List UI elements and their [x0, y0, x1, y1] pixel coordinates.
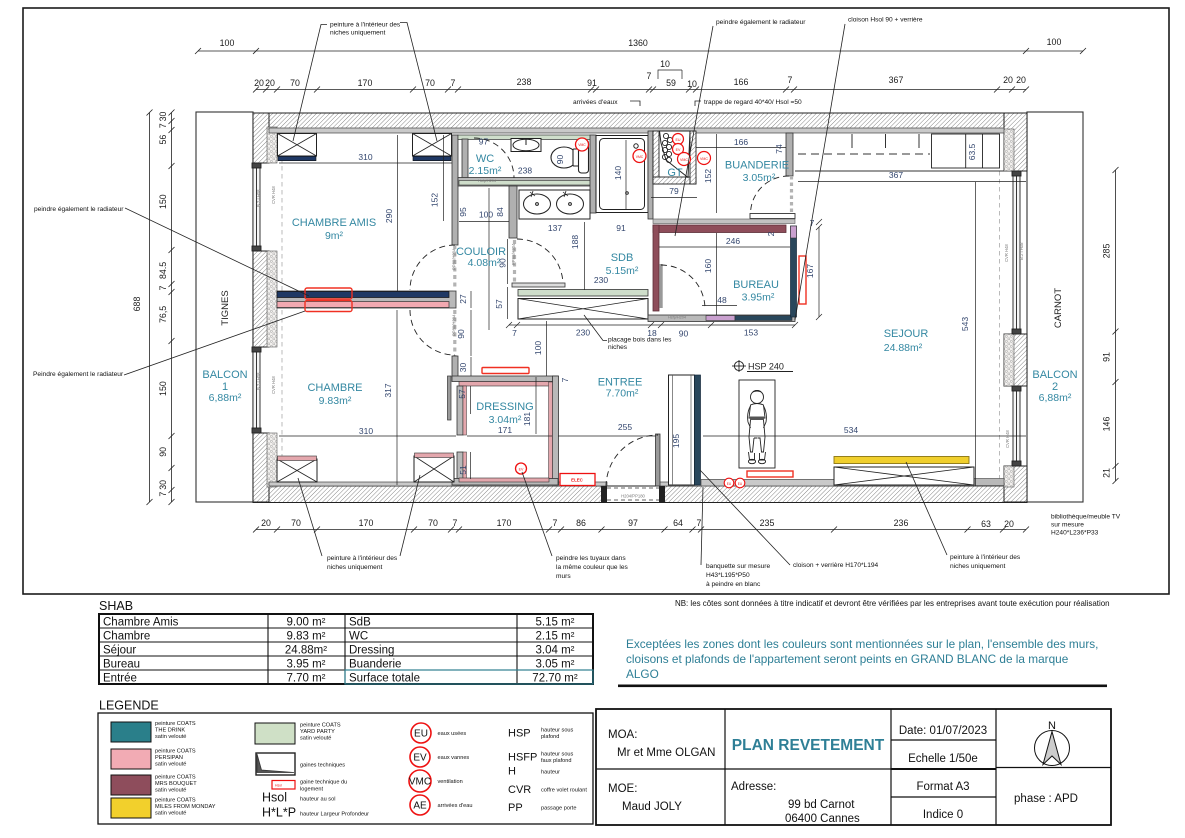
svg-text:3.95m²: 3.95m² — [742, 292, 775, 304]
svg-text:PERSIPAN: PERSIPAN — [155, 755, 183, 761]
svg-text:VMC: VMC — [578, 143, 586, 147]
svg-text:57: 57 — [457, 389, 467, 399]
svg-text:153: 153 — [744, 328, 758, 338]
svg-text:H: H — [508, 766, 516, 778]
svg-text:VMC: VMC — [409, 777, 431, 788]
svg-text:7: 7 — [453, 518, 458, 528]
svg-text:CARNOT: CARNOT — [1053, 288, 1064, 328]
svg-text:170: 170 — [497, 518, 512, 528]
svg-text:7: 7 — [158, 492, 168, 497]
svg-text:236: 236 — [894, 518, 909, 528]
svg-text:9.83m²: 9.83m² — [319, 395, 352, 407]
svg-text:2.15 m²: 2.15 m² — [536, 631, 575, 643]
svg-text:B.2 I H08: B.2 I H08 — [256, 372, 261, 390]
svg-text:Adresse:: Adresse: — [731, 781, 776, 793]
svg-text:EV: EV — [519, 467, 524, 471]
svg-text:satin velouté: satin velouté — [155, 762, 186, 768]
svg-text:76,5: 76,5 — [158, 306, 168, 323]
svg-text:9m²: 9m² — [325, 230, 344, 242]
svg-text:BALCON: BALCON — [1032, 369, 1077, 381]
svg-text:70: 70 — [290, 78, 300, 88]
svg-text:86: 86 — [576, 518, 586, 528]
svg-text:74: 74 — [774, 144, 784, 154]
svg-text:59: 59 — [666, 78, 676, 88]
svg-text:91: 91 — [616, 223, 626, 233]
svg-text:arrivées d'eaux: arrivées d'eaux — [573, 99, 618, 106]
svg-text:97: 97 — [628, 518, 638, 528]
svg-text:246: 246 — [726, 236, 740, 246]
svg-text:3.05 m²: 3.05 m² — [536, 659, 575, 671]
svg-text:B.2 I H08: B.2 I H08 — [1019, 242, 1024, 260]
svg-text:7: 7 — [512, 328, 517, 338]
svg-text:20: 20 — [254, 78, 264, 88]
svg-text:20: 20 — [1016, 75, 1026, 85]
svg-text:6,88m²: 6,88m² — [1039, 392, 1072, 404]
svg-text:EU: EU — [676, 138, 681, 142]
svg-text:20: 20 — [261, 518, 271, 528]
svg-text:hauteur sous: hauteur sous — [541, 728, 574, 734]
svg-text:10: 10 — [660, 59, 670, 69]
svg-text:310: 310 — [358, 152, 372, 162]
svg-text:Chambre: Chambre — [103, 631, 150, 643]
svg-text:20: 20 — [265, 78, 275, 88]
svg-text:30: 30 — [158, 112, 168, 122]
svg-text:171: 171 — [498, 425, 512, 435]
svg-text:146: 146 — [1102, 417, 1112, 432]
svg-text:195: 195 — [671, 434, 681, 448]
svg-text:99 bd Carnot: 99 bd Carnot — [788, 799, 855, 811]
svg-text:91: 91 — [587, 78, 597, 88]
svg-text:ALGO: ALGO — [626, 667, 659, 681]
svg-text:hauteur: hauteur — [541, 770, 560, 776]
svg-text:CHAMBRE AMIS: CHAMBRE AMIS — [292, 217, 376, 229]
svg-text:7: 7 — [451, 78, 456, 88]
svg-text:CHAMBRE: CHAMBRE — [307, 382, 362, 394]
svg-text:eaux usées: eaux usées — [438, 731, 467, 737]
svg-text:90: 90 — [555, 155, 565, 165]
svg-text:90: 90 — [679, 329, 689, 339]
svg-text:BALCON: BALCON — [202, 369, 247, 381]
svg-text:arrivées d'eau: arrivées d'eau — [438, 803, 473, 809]
svg-text:100: 100 — [220, 38, 235, 48]
svg-text:95: 95 — [458, 207, 468, 217]
svg-text:niches uniquement: niches uniquement — [950, 563, 1006, 570]
svg-text:100: 100 — [479, 210, 493, 220]
svg-text:367: 367 — [889, 170, 903, 180]
svg-text:543: 543 — [960, 317, 970, 331]
svg-text:placage bois dans les: placage bois dans les — [608, 337, 672, 344]
svg-text:Exceptées les zones dont les c: Exceptées les zones dont les couleurs so… — [626, 637, 1098, 651]
svg-text:SdB: SdB — [349, 617, 371, 629]
svg-text:gaines techniques: gaines techniques — [300, 763, 345, 769]
svg-text:170: 170 — [359, 518, 374, 528]
svg-text:la même couleur que les: la même couleur que les — [556, 564, 629, 571]
svg-text:satin velouté: satin velouté — [300, 736, 331, 742]
svg-text:peinture COATS: peinture COATS — [155, 749, 196, 755]
svg-text:TIGNES: TIGNES — [220, 290, 231, 325]
svg-text:10: 10 — [687, 79, 697, 89]
svg-text:CVR H48: CVR H48 — [271, 186, 276, 204]
svg-text:satin velouté: satin velouté — [155, 734, 186, 740]
svg-text:100: 100 — [533, 341, 543, 355]
svg-text:coffre volet roulant: coffre volet roulant — [541, 788, 587, 794]
svg-text:MRS BOUQUET: MRS BOUQUET — [155, 781, 197, 787]
svg-text:310: 310 — [359, 426, 373, 436]
svg-text:140: 140 — [613, 166, 623, 180]
svg-text:banquette sur mesure: banquette sur mesure — [706, 563, 770, 570]
svg-text:EU: EU — [738, 482, 743, 486]
svg-text:20: 20 — [1003, 75, 1013, 85]
svg-text:3.04m²: 3.04m² — [489, 414, 522, 426]
svg-text:eaux vannes: eaux vannes — [438, 755, 470, 761]
svg-text:90: 90 — [158, 447, 168, 457]
svg-text:Echelle 1/50e: Echelle 1/50e — [908, 753, 978, 765]
svg-text:GT: GT — [667, 167, 683, 179]
svg-text:167: 167 — [805, 264, 815, 278]
svg-text:cloisons et plafonds de l'appa: cloisons et plafonds de l'appartement se… — [626, 652, 1069, 666]
svg-text:logement: logement — [300, 787, 323, 793]
svg-text:Maud JOLY: Maud JOLY — [622, 801, 682, 813]
svg-text:24.88m²: 24.88m² — [884, 342, 923, 354]
svg-text:PLAN REVETEMENT: PLAN REVETEMENT — [732, 737, 885, 754]
svg-text:150: 150 — [158, 194, 168, 209]
svg-text:Buanderie: Buanderie — [349, 659, 401, 671]
svg-text:7.70 m²: 7.70 m² — [287, 673, 326, 685]
svg-text:Dressing: Dressing — [349, 645, 394, 657]
svg-text:Hsol: Hsol — [262, 791, 287, 805]
svg-text:PP80/H204: PP80/H204 — [511, 243, 516, 265]
svg-text:peinture à l'intérieur des: peinture à l'intérieur des — [327, 555, 398, 562]
svg-text:H43*L195*P50: H43*L195*P50 — [706, 572, 750, 579]
svg-text:290: 290 — [384, 209, 394, 223]
svg-text:3.04 m²: 3.04 m² — [536, 645, 575, 657]
svg-text:B.2 I H08: B.2 I H08 — [256, 189, 261, 207]
svg-text:70: 70 — [291, 518, 301, 528]
svg-text:7: 7 — [158, 285, 168, 290]
svg-text:SHAB: SHAB — [99, 599, 133, 613]
svg-text:niches: niches — [608, 344, 628, 351]
svg-text:Mr et Mme OLGAN: Mr et Mme OLGAN — [617, 747, 715, 759]
svg-text:peinture COATS: peinture COATS — [155, 798, 196, 804]
svg-text:166: 166 — [734, 137, 748, 147]
svg-text:niches uniquement: niches uniquement — [330, 30, 386, 37]
svg-text:100: 100 — [1047, 37, 1062, 47]
svg-text:30: 30 — [458, 363, 468, 373]
svg-text:hauteur au sol: hauteur au sol — [300, 797, 335, 803]
svg-text:Bureau: Bureau — [103, 659, 140, 671]
svg-text:HSP 240: HSP 240 — [748, 362, 784, 372]
svg-text:ventilation: ventilation — [438, 779, 463, 785]
svg-text:137: 137 — [548, 223, 562, 233]
svg-text:peinture à l'intérieur des: peinture à l'intérieur des — [950, 554, 1021, 561]
svg-text:84: 84 — [495, 207, 505, 217]
svg-text:20: 20 — [1004, 519, 1014, 529]
svg-text:152: 152 — [703, 169, 713, 183]
svg-text:235: 235 — [760, 518, 775, 528]
svg-text:CVR H48: CVR H48 — [1005, 430, 1010, 448]
svg-text:phase : APD: phase : APD — [1014, 793, 1078, 805]
svg-text:7: 7 — [158, 123, 168, 128]
svg-text:bibliothèque/meuble TV: bibliothèque/meuble TV — [1051, 514, 1121, 521]
svg-text:48: 48 — [717, 295, 727, 305]
svg-text:CVR H48: CVR H48 — [1004, 244, 1009, 262]
svg-text:2.15m²: 2.15m² — [469, 165, 502, 177]
svg-text:gaine technique du: gaine technique du — [300, 780, 347, 786]
svg-text:7: 7 — [560, 377, 570, 382]
svg-text:6,88m²: 6,88m² — [209, 392, 242, 404]
svg-text:255: 255 — [618, 422, 632, 432]
svg-text:84.5: 84.5 — [158, 262, 168, 279]
svg-text:3.95 m²: 3.95 m² — [287, 659, 326, 671]
svg-text:285: 285 — [1102, 244, 1112, 259]
svg-text:170: 170 — [358, 78, 373, 88]
svg-text:trappe de regard 40*40/ Hsol =: trappe de regard 40*40/ Hsol =50 — [704, 99, 802, 106]
svg-text:2: 2 — [766, 231, 776, 236]
svg-text:Date: 01/07/2023: Date: 01/07/2023 — [899, 725, 987, 737]
svg-text:PP80/H204: PP80/H204 — [452, 314, 457, 336]
svg-text:317: 317 — [383, 383, 393, 397]
svg-text:H204/PP180: H204/PP180 — [621, 494, 645, 499]
svg-text:150: 150 — [158, 381, 168, 396]
svg-text:688: 688 — [132, 297, 142, 312]
svg-text:WC: WC — [476, 153, 494, 165]
svg-text:plafond: plafond — [541, 734, 559, 740]
svg-text:SEJOUR: SEJOUR — [884, 328, 929, 340]
svg-text:79: 79 — [669, 186, 679, 196]
svg-text:peindre également le radiateur: peindre également le radiateur — [716, 19, 806, 26]
svg-text:9.83 m²: 9.83 m² — [287, 631, 326, 643]
svg-text:peinture COATS: peinture COATS — [155, 721, 196, 727]
svg-text:7: 7 — [553, 518, 558, 528]
svg-text:VMC: VMC — [700, 157, 708, 161]
svg-text:PP80/H204: PP80/H204 — [452, 248, 457, 270]
svg-text:EV: EV — [676, 148, 681, 152]
svg-text:MOA:: MOA: — [608, 729, 637, 741]
svg-text:H240*L236*P33: H240*L236*P33 — [1051, 530, 1099, 537]
svg-text:Hsol: Hsol — [275, 784, 282, 788]
svg-text:hauteur sous: hauteur sous — [541, 752, 574, 758]
svg-text:peinture COATS: peinture COATS — [155, 775, 196, 781]
svg-text:Entrée: Entrée — [103, 673, 137, 685]
svg-text:3.05m²: 3.05m² — [743, 172, 776, 184]
svg-text:EU: EU — [414, 729, 428, 740]
svg-text:WC: WC — [349, 631, 368, 643]
svg-text:91: 91 — [1102, 352, 1112, 362]
svg-text:hauteur Largeur Profondeur: hauteur Largeur Profondeur — [300, 812, 369, 818]
svg-text:367: 367 — [889, 75, 904, 85]
svg-text:H*L*P: H*L*P — [262, 806, 296, 820]
svg-text:LEGENDE: LEGENDE — [99, 699, 159, 713]
svg-text:97: 97 — [479, 137, 489, 147]
svg-text:Séjour: Séjour — [103, 645, 136, 657]
svg-text:faux plafond: faux plafond — [541, 758, 571, 764]
svg-text:EV: EV — [413, 753, 427, 764]
svg-text:06400 Cannes: 06400 Cannes — [785, 813, 860, 825]
svg-text:Hsfp/H204: Hsfp/H204 — [478, 179, 496, 183]
svg-text:70: 70 — [428, 518, 438, 528]
svg-text:70: 70 — [425, 78, 435, 88]
svg-text:peindre les tuyaux dans: peindre les tuyaux dans — [556, 555, 626, 562]
svg-text:YARD PARTY: YARD PARTY — [300, 729, 335, 735]
svg-text:63: 63 — [981, 519, 991, 529]
svg-text:Format A3: Format A3 — [916, 781, 969, 793]
svg-text:5.15m²: 5.15m² — [606, 265, 639, 277]
svg-text:56: 56 — [158, 135, 168, 145]
svg-text:72.70 m²: 72.70 m² — [532, 673, 578, 685]
svg-text:Surface totale: Surface totale — [349, 673, 420, 685]
svg-text:MILES FROM MONDAY: MILES FROM MONDAY — [155, 804, 216, 810]
svg-text:181: 181 — [522, 412, 532, 426]
svg-text:238: 238 — [517, 77, 532, 87]
svg-text:CVR: CVR — [508, 784, 531, 796]
svg-text:9.00 m²: 9.00 m² — [287, 617, 326, 629]
svg-text:4.08m²: 4.08m² — [468, 257, 501, 269]
svg-text:5.15 m²: 5.15 m² — [536, 617, 575, 629]
svg-text:63.5: 63.5 — [967, 143, 977, 160]
svg-text:57: 57 — [494, 299, 504, 309]
svg-text:cloison + verrière H170*L194: cloison + verrière H170*L194 — [793, 562, 879, 569]
svg-text:cloison Hsol 90 + verrière: cloison Hsol 90 + verrière — [848, 17, 923, 24]
svg-text:niches uniquement: niches uniquement — [327, 564, 383, 571]
svg-text:64: 64 — [673, 518, 683, 528]
svg-text:Indice 0: Indice 0 — [923, 809, 963, 821]
svg-text:BUANDERIE: BUANDERIE — [725, 160, 789, 172]
svg-text:Peindre également le radiateur: Peindre également le radiateur — [33, 371, 124, 378]
svg-text:188: 188 — [570, 235, 580, 249]
svg-text:166: 166 — [734, 77, 749, 87]
svg-text:24.88m²: 24.88m² — [285, 645, 327, 657]
svg-text:PP: PP — [508, 802, 523, 814]
svg-text:peinture à l'intérieur des: peinture à l'intérieur des — [330, 22, 401, 29]
svg-text:152: 152 — [430, 193, 440, 207]
svg-text:HSP: HSP — [508, 728, 531, 740]
svg-text:51: 51 — [458, 465, 468, 475]
svg-text:satin velouté: satin velouté — [155, 788, 186, 794]
svg-text:peinture COATS: peinture COATS — [300, 723, 341, 729]
svg-text:7: 7 — [697, 518, 702, 528]
svg-text:SDB: SDB — [611, 252, 634, 264]
svg-text:DRESSING: DRESSING — [476, 401, 533, 413]
svg-text:27: 27 — [458, 294, 468, 304]
svg-text:ELEC: ELEC — [571, 478, 584, 483]
svg-text:BUREAU: BUREAU — [733, 279, 779, 291]
svg-text:NB: les côtes sont données à t: NB: les côtes sont données à titre indic… — [675, 599, 1110, 608]
svg-text:murs: murs — [556, 573, 571, 580]
svg-text:1360: 1360 — [628, 38, 648, 48]
svg-text:7: 7 — [788, 75, 793, 85]
svg-text:à peindre en blanc: à peindre en blanc — [706, 581, 761, 588]
svg-text:sur mesure: sur mesure — [1051, 522, 1084, 529]
svg-text:160: 160 — [703, 259, 713, 273]
svg-text:Chambre Amis: Chambre Amis — [103, 617, 179, 629]
svg-text:AE: AE — [413, 801, 427, 812]
svg-text:21: 21 — [1102, 468, 1112, 478]
svg-text:534: 534 — [844, 425, 858, 435]
svg-text:passage porte: passage porte — [541, 806, 576, 812]
svg-text:VMC: VMC — [680, 158, 688, 162]
svg-text:satin velouté: satin velouté — [155, 811, 186, 817]
svg-text:Hsfp/H204: Hsfp/H204 — [668, 316, 686, 320]
svg-text:HSFP: HSFP — [508, 752, 537, 764]
svg-text:238: 238 — [518, 166, 532, 176]
svg-text:EU: EU — [727, 482, 732, 486]
svg-text:MOE:: MOE: — [608, 783, 637, 795]
svg-text:peindre également le radiateur: peindre également le radiateur — [34, 206, 124, 213]
svg-text:THE DRINK: THE DRINK — [155, 728, 185, 734]
svg-text:CVR H48: CVR H48 — [271, 376, 276, 394]
svg-text:90: 90 — [456, 329, 466, 339]
svg-text:7: 7 — [647, 71, 652, 81]
svg-text:7.70m²: 7.70m² — [606, 388, 639, 400]
svg-text:VMC: VMC — [636, 155, 644, 159]
svg-text:230: 230 — [576, 328, 590, 338]
svg-text:30: 30 — [158, 480, 168, 490]
